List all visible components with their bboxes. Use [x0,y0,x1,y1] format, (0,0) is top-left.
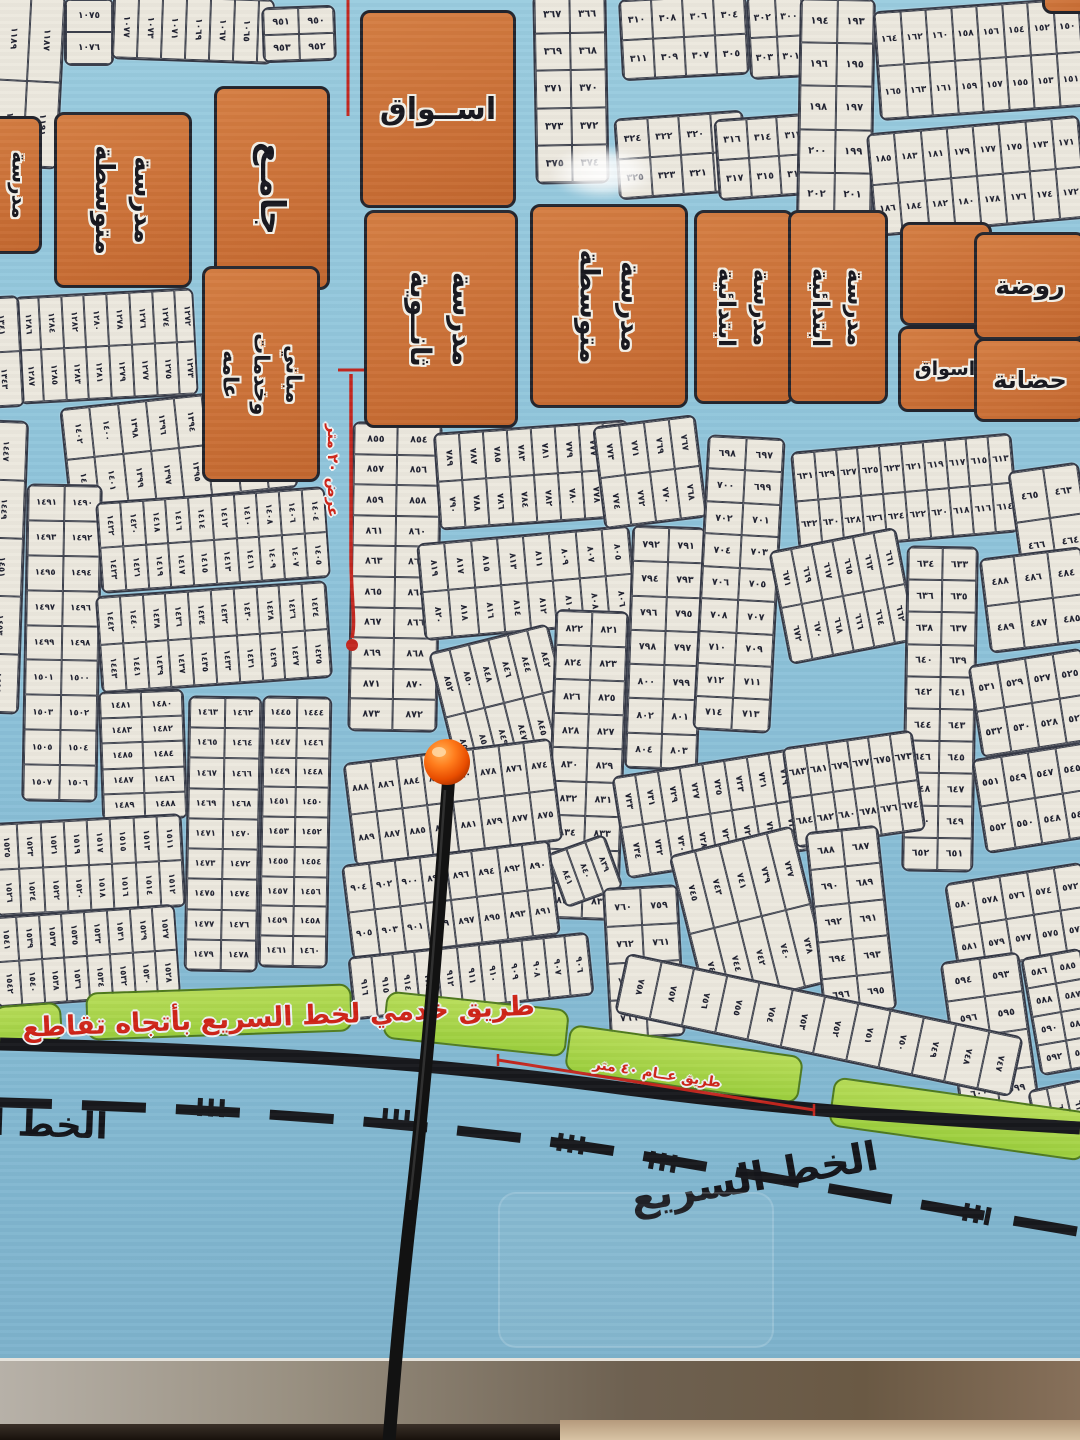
plot-number: ١٤٦٩ [188,788,224,819]
plot-number: ٧٨٥ [483,430,510,479]
plot-number: ١٤٥١ [262,787,296,817]
plot-number: ٥٩٥ [985,991,1028,1034]
plot-number: ١٥٣٣ [84,910,110,955]
plot-number: ٣٦٩ [535,33,571,71]
plot-number: ٣٧٠ [571,70,607,108]
plot-number: ١٤٨٦ [143,766,185,793]
plot-number: ١٥١٩ [63,820,89,866]
frame-shadow-left [0,1424,560,1440]
plot-number: ١٥١٤ [135,861,161,907]
plot-block-r-525: ٥٣١٥٢٩٥٢٧٥٢٥٥٣٢٥٣٠٥٢٨٥٢٦ [967,648,1080,759]
plot-number: ٣٠٩ [653,37,686,78]
plot-number: ١٤٥٥ [0,653,19,712]
plot-number: ٧٦٧ [669,416,700,469]
plot-number: ٦٥١ [937,838,972,871]
plot-number: ١٤٥٧ [261,876,295,906]
plot-number: ٣٢٢ [647,116,681,157]
plot-number: ١٤٥١ [0,537,23,596]
plot-number: ١٥٣٩ [16,915,42,960]
plot-block-ml-1490: ١٤٩١١٤٩٠١٤٩٣١٤٩٢١٤٩٥١٤٩٤١٤٩٧١٤٩٦١٤٩٩١٤٩٨… [21,483,103,802]
facility-label: حضانة [993,362,1067,398]
plot-number: ٨٩١ [528,887,559,936]
plot-number: ٧٧٩ [555,425,582,474]
plot-block-ml-1444: ١٤٤٥١٤٤٤١٤٤٧١٤٤٦١٤٤٩١٤٤٨١٤٥١١٤٥٠١٤٥٣١٤٥٢… [258,695,333,968]
plot-number: ٨١٧ [444,541,474,590]
plot-number: ١٩٤ [801,0,838,43]
plot-block-c-697: ٦٩٨٦٩٧٧٠٠٦٩٩٧٠٢٧٠١٧٠٤٧٠٣٧٠٦٧٠٥٧٠٨٧٠٧٧١٠٧… [692,434,785,734]
plot-number: ٨٢٤ [555,645,591,680]
facility-orange-sliver-top-right [1042,0,1080,14]
plot-number: ٦٩٤ [818,939,857,979]
plot-number: ١٥٤٠ [19,959,45,1004]
plot-number: ١٤٥٤ [294,847,328,877]
plot-number: ١٤٧٢ [222,849,258,880]
plot-block-tl-1075: ١٠٧٥١٠٧٦ [64,0,114,66]
plot-number: ٦٩٨ [708,436,747,470]
plot-number: ٧٩٥ [666,597,702,632]
plot-number: ١٤٢٩ [259,632,285,680]
plot-number: ١٥٣٨ [42,958,68,1003]
plot-block-c-767: ٧٧٣٧٧١٧٦٩٧٦٧٧٧٤٧٧٢٧٧٠٧٦٨ [592,414,708,530]
plot-number: ١٤٨٥ [102,742,144,769]
plot-number: ١٦١ [929,61,958,116]
plot-number: ١٥٣ [1031,54,1060,109]
plot-number: ٨٧٢ [392,699,436,730]
plot-number: ١٤٦٦ [224,758,260,789]
plot-number: ١٢٧٤ [152,290,177,343]
plot-number: ١٢٨٣ [64,347,89,400]
plot-number: ١٤٩٢ [64,521,101,557]
plot-number: ١٩٦ [800,43,837,87]
plot-number: ١٤٩٩ [26,625,63,661]
plot-number: ١٤٨١ [100,692,142,719]
plot-number: ١٤٣٨ [142,593,168,641]
plot-number: ١٢٨٢ [61,295,86,348]
plot-number: ١٢٧٥ [155,342,180,395]
plot-number: ٨١٦ [475,585,505,634]
plot-number: ١٥٠٢ [60,695,97,731]
plot-number: ١٤٧٩ [186,939,222,970]
plot-number: ٣٦٦ [569,0,605,33]
plot-number: ٦٤٩ [938,806,973,839]
plot-number: ١٦٣ [904,63,933,118]
plot-number: ٣٧٢ [571,107,607,145]
plot-number: ٩٥١ [263,8,299,35]
plot-number: ٧٠٦ [701,566,740,600]
frame-highlight [0,1358,1080,1361]
plot-number: ١٥٢١ [40,821,66,867]
plot-number: ١٤٣٩ [146,640,172,688]
plot-number: ١٤٩٤ [63,556,100,592]
plot-number: ٨٢٧ [588,714,624,749]
plot-number: ١٩٣ [837,0,874,44]
plot-number: ١٤٤٠ [120,595,146,643]
plot-number: ٧٩٣ [667,562,703,597]
plot-number: ١٥٠١ [25,660,62,696]
plot-number: ١٤٢٨ [256,585,282,633]
facility-label: مدرسةابتدائية [0,151,34,220]
plot-number: ١٧١ [1051,117,1080,169]
plot-number: ١٤٤٣ [100,643,126,691]
plot-number: ١٤٣٢ [211,589,237,637]
plot-number: ١٥٢٨ [155,950,181,995]
plot-number: ١٢٧٢ [175,289,199,342]
plot-block-ml-1480: ١٤٨١١٤٨٠١٤٨٣١٤٨٢١٤٨٥١٤٨٤١٤٨٧١٤٨٦١٤٨٩١٤٨٨ [98,689,188,822]
plot-number: ١٤١٢ [211,494,237,539]
plot-number: ١٤١٤ [188,496,214,541]
plot-number: ١٤٥٠ [295,787,329,817]
plot-number: ١٠٦٧ [209,0,235,61]
facility-middle-school-left: مدرسةمتوسطة [54,112,192,288]
plot-number: ٨٢٣ [590,646,626,681]
plot-number: ١٥٩ [955,59,984,114]
plot-number: ٢٠٠ [799,129,836,173]
plot-number: ١٤٦١ [260,936,294,966]
plot-number: ١٢٧٧ [132,343,157,396]
plot-number: ٧٩٦ [631,595,667,630]
camera-flash-glare [548,144,658,200]
plot-number: ٦٤٣ [939,709,974,742]
plot-number: ٦٩٩ [743,471,782,505]
plot-number: ١٤٦٠ [293,936,327,966]
plot-number: ١٤٥٦ [294,877,328,907]
plot-number: ٣٧٣ [536,108,572,146]
plot-number: ٧١٣ [731,697,770,731]
plot-number: ٧١٢ [696,663,735,697]
plot-number: ٦٩٧ [745,438,784,472]
plot-number: ١٤٥٨ [293,906,327,936]
plot-number: ٦٣٣ [942,548,977,581]
plot-number: ١٤٠٩ [259,535,285,580]
plot-number: ١٥٢٤ [19,867,45,913]
plot-number: ٦٩١ [849,899,888,939]
plot-number: ٦٨٧ [841,827,880,867]
plot-block-ml-1424: ١٤٤٢١٤٤٠١٤٣٨١٤٣٦١٤٣٤١٤٣٢١٤٣٠١٤٢٨١٤٢٦١٤٢٤… [95,580,333,694]
plot-number: ٨٢٠ [422,590,452,639]
plot-number: ٧١٠ [698,631,737,665]
plot-number: ١٢٧٦ [129,292,154,345]
plot-number: ١٤١٣ [214,538,240,583]
plot-number: ٨٦١ [353,515,397,546]
plot-number: ٨٥٧ [354,454,398,485]
facility-mosque: جامـع [214,86,330,290]
plot-number: ٦٩٠ [810,867,849,907]
plot-number: ٨٥٨ [396,485,440,516]
plot-number: ١٠٧٧ [113,0,139,58]
plot-number: ١٦٥ [878,64,907,119]
plot-number: ٣٠٤ [713,0,746,35]
plot-number: ٦٤٢ [906,676,941,709]
plot-number: ٦٤٧ [938,773,973,806]
plot-number: ١٤٣٤ [188,590,214,638]
plot-number: ٦٣٥ [942,580,977,613]
plot-number: ٨٧٥ [530,789,562,842]
plot-number: ٣٠٨ [651,0,684,39]
plot-number: ١٤٤٥ [264,697,298,727]
facility-label: روضة [995,267,1064,305]
plot-number: ١٥٢٩ [129,907,155,952]
plot-block-tr-150: ١٦٤١٦٢١٦٠١٥٨١٥٦١٥٤١٥٢١٥٠١٦٥١٦٣١٦١١٥٩١٥٧١… [872,0,1080,121]
plot-number: ٨١٨ [449,588,479,637]
plot-number: ٨٢٦ [554,679,590,714]
plot-number: ٣٠٧ [684,35,717,76]
plot-number: ٨٢١ [591,612,627,647]
plot-number: ١٤٤٧ [0,421,27,480]
plot-number: ١٤٠٨ [256,491,282,536]
plot-number: ١٤٦٣ [190,697,226,728]
facility-middle-school-center: مدرسةمتوسطة [530,204,688,408]
plot-number: ١٥٢٧ [152,906,178,951]
plot-number: ٨٦٥ [351,576,395,607]
plot-number: ١٧٢ [1055,167,1080,219]
plot-number: ٣٦٨ [570,33,606,71]
plot-block-ml-1404: ١٤٢٢١٤٢٠١٤١٨١٤١٦١٤١٤١٤١٢١٤١٠١٤٠٨١٤٠٦١٤٠٤… [95,486,331,594]
plot-number: ١٤١٨ [143,499,169,544]
plot-number: ٧٨٨ [462,478,489,527]
plot-number: ١٠٧١ [161,0,187,60]
plot-number: ١٤٨٤ [143,741,185,768]
plot-block-tl-950: ٩٥١٩٥٠٩٥٣٩٥٢ [261,5,337,64]
plot-number: ١٤١٥ [191,540,217,585]
facility-nursery: حضانة [974,338,1080,422]
plot-number: ١٥٠٦ [59,765,96,801]
facility-primary-school-left-edge: مدرسةابتدائية [0,116,42,254]
facility-label: اسواق [915,355,976,384]
plot-number: ١٥٤ [1002,3,1031,58]
plot-number: ١٥١٢ [159,860,185,906]
plot-number: ١٢٨١ [86,346,111,399]
facility-label: مبانيوخدمات عامه [214,318,309,430]
plot-number: ٨٦٣ [352,546,396,577]
street-20m-label: عرض ٢٠ متر [324,424,342,454]
plot-number: ٩٥٢ [299,33,335,60]
plot-block-tc-303: ٣١٠٣٠٨٣٠٦٣٠٤٣١١٣٠٩٣٠٧٣٠٥ [618,0,750,81]
plot-number: ٥٩٤ [942,959,985,1002]
plot-number: ١٥١٧ [87,819,113,865]
plot-number: ٣٠٦ [682,0,715,37]
plot-number: ١٤٨٠ [141,691,183,718]
facility-markets-large: اســواق [360,10,516,208]
plot-number: ١٤٣١ [237,634,263,682]
plot-number: ١٤٩٦ [62,591,99,627]
plot-number: ٦٣٦ [908,580,943,613]
plot-number: ١٥١١ [156,815,182,861]
plot-number: ١٤٤٨ [296,758,330,788]
plot-number: ٨٧١ [350,668,394,699]
plot-number: ٣٠٢ [748,0,777,38]
plot-number: ١٤٤٤ [297,698,331,728]
plot-number: ٣١١ [622,39,655,80]
plot-number: ١٤٢١ [123,545,149,590]
plot-number: ١٥٢٠ [66,865,92,911]
plot-number: ٣٠٥ [715,34,748,75]
plot-number: ١٤٤٢ [97,596,123,644]
plot-number: ١٤٥٢ [295,817,329,847]
plot-number: ٧٨٦ [486,477,513,526]
facility-kindergarten: روضة [974,232,1080,340]
plot-number: ٦٩٢ [814,903,853,943]
plot-number: ١٥٢٢ [43,866,69,912]
plot-number: ١٠٦٥ [233,0,259,62]
plot-number: ١٢٧٨ [106,293,131,346]
facility-primary-school-b: مدرسةابتدائية [788,210,888,404]
facility-secondary-school: مدرسةثانــوية [364,210,518,428]
plot-block-tr-171: ١٨٥١٨٣١٨١١٧٩١٧٧١٧٥١٧٣١٧١١٨٦١٨٤١٨٢١٨٠١٧٨١… [866,115,1080,237]
plot-number: ٨٠٢ [627,698,663,733]
plot-number: ٦٥٢ [903,837,938,870]
plot-number: ١٤١١ [237,537,263,582]
plot-number: ١٥٦ [976,4,1005,59]
plot-number: ٣٧١ [536,70,572,108]
plot-number: ١١٨٧ [27,0,64,83]
plot-block-r-685: ٦٨٨٦٨٧٦٩٠٦٨٩٦٩٢٦٩١٦٩٤٦٩٣٦٩٦٦٩٥ [804,825,897,1018]
plot-number: ٨٢٢ [556,611,592,646]
plot-number: ١٤٧٤ [222,879,258,910]
plot-number: ٣٠٣ [750,37,779,78]
plot-number: ١٤٨٧ [102,768,144,795]
plot-number: ١٥٠٤ [60,730,97,766]
plot-number: ١٤٥٩ [260,906,294,936]
plot-number: ١٠٧٦ [66,32,112,64]
plot-number: ٦٣٨ [907,612,942,645]
plot-number: ٧٦٠ [604,888,642,927]
plot-number: ١٤٩١ [28,485,65,520]
plot-number: ٣١٠ [620,0,653,40]
plot-number: ٦٣٧ [941,612,976,645]
plot-number: ١٥١٥ [110,818,136,864]
plot-number: ١٤٧٣ [187,848,223,879]
plot-number: ١٤٧٧ [186,909,222,940]
facility-label: اســواق [380,87,496,132]
plot-number: ١٤٤١ [123,642,149,690]
plot-number: ٧٠٤ [703,533,742,567]
plot-number: ١٥٧ [980,57,1009,112]
plot-number: ١٥١٦ [112,863,138,909]
plot-number: ١٥١ [1056,52,1080,107]
plot-number: ١٣٤١ [0,297,20,353]
plot-number: ٣٢١ [681,153,715,194]
plot-number: ٧٨٧ [459,431,486,480]
facility-label: مدرسةابتدائية [710,267,779,346]
plot-number: ١٢٨٥ [41,348,66,401]
plot-number: ٨٢٨ [553,713,589,748]
plot-number: ١٩٨ [800,86,837,130]
plot-number: ٨١٢ [527,581,557,630]
plot-number: ١٤٠٧ [282,534,308,579]
plot-number: ٨٠٧ [575,529,605,578]
plot-number: ١٢٧٩ [109,345,134,398]
plot-number: ١٥٣٦ [64,956,90,1001]
plot-number: ١٤٠٦ [279,490,305,535]
plot-block-ml-1511: ١٥٢٥١٥٢٣١٥٢١١٥١٩١٥١٧١٥١٥١٥١٣١٥١١١٥٢٦١٥٢٤… [0,813,186,917]
plot-number: ٧٠٢ [705,501,744,535]
plot-number: ٤٨٩ [986,602,1025,652]
plot-number: ٨٥٦ [397,455,441,486]
plot-number: ٨٦٩ [350,637,394,668]
plot-number: ٣٢٠ [678,114,712,155]
plot-number: ٧٩٤ [632,561,668,596]
plot-number: ٤٨٤ [1047,548,1080,598]
plot-number: ١٤٣٣ [214,635,240,683]
plot-number: ٨٣٠ [551,747,587,782]
plot-number: ٨١١ [523,534,553,583]
plot-number: ١٤٢٤ [302,582,328,630]
highway-label-left: الخط السريع [0,1099,183,1150]
plot-number: ٨٠٠ [628,664,664,699]
plot-block-ml-1462: ١٤٦٣١٤٦٢١٤٦٥١٤٦٤١٤٦٧١٤٦٦١٤٦٩١٤٦٨١٤٧١١٤٧٠… [184,695,263,972]
plot-number: ٧٦٨ [675,466,706,519]
plot-number: ١٤٠٥ [305,532,331,577]
plot-number: ١٥٠٥ [24,730,61,766]
plot-number: ١٦٢ [900,10,929,65]
plot-number: ٣٦٧ [534,0,570,34]
plot-number: ٧٠٨ [700,598,739,632]
plot-number: ١٤١٧ [168,542,194,587]
plot-number: ٧٠١ [742,503,781,537]
plot-number: ١٤٤٩ [263,757,297,787]
plot-number: ١٤٢٢ [97,502,123,547]
facility-label: جامـع [246,141,297,234]
plot-number: ٦٨٨ [807,830,846,870]
plot-number: ٤٦٣ [1043,464,1080,518]
plot-number: ٦٤٥ [939,741,974,774]
plot-number: ١٤٤٦ [296,728,330,758]
plot-number: ٧٠٧ [736,600,775,634]
plot-number: ١٢٨٠ [84,294,109,347]
plot-number: ٤٨٥ [1053,594,1080,644]
plot-number: ١٤٩٥ [27,555,64,591]
plot-number: ١٥٠٣ [24,695,61,731]
plot-number: ٧٠٩ [735,633,774,667]
plot-number: ١٩٥ [836,43,873,87]
plot-number: ١٥٣٥ [61,912,87,957]
plot-number: ٨١٤ [501,583,531,632]
plot-block-r-661: ٦٧١٦٦٩٦٦٧٦٦٥٦٦٣٦٦١٦٧٢٦٧٠٦٦٨٦٦٦٦٦٤٦٦٢ [768,527,918,666]
plot-number: ٦٨٩ [845,863,884,903]
plot-number: ٩٥٠ [298,7,334,34]
plot-number: ١٤٩٣ [28,520,65,556]
plot-number: ١٩٧ [836,86,873,130]
plot-number: ٧٥٩ [640,886,678,925]
plot-number: ٥٩٣ [979,953,1022,996]
plot-number: ٧٩٠ [438,480,465,529]
plot-number: ١٠٧٣ [137,0,163,59]
plot-number: ٣١٤ [746,117,779,158]
plot-number: ١٤٣٧ [169,639,195,687]
plot-number: ١٢٧٣ [177,341,198,394]
plot-number: ١٤٥٣ [262,817,296,847]
plot-number: ٧٨٤ [510,475,537,524]
plot-number: ١٥٥ [1005,55,1034,110]
plot-number: ١٤٣٠ [233,587,259,635]
plot-number: ٧٨٢ [534,473,561,522]
plot-number: ٣١٥ [749,156,782,197]
facility-primary-school-a: مدرسةابتدائية [694,210,794,404]
plot-number: ٤٨٨ [981,556,1020,606]
plot-number: ٨٠٤ [626,732,662,767]
plot-number: ٨٦٧ [351,607,395,638]
plot-number: ١٠٧٥ [66,0,112,32]
plot-number: ١٤١٠ [233,493,259,538]
plot-number: ١٥١٨ [89,864,115,910]
plot-number: ٣١٧ [718,158,751,199]
plot-number: ١٤٣٥ [191,637,217,685]
plot-block-r-483: ٤٨٨٤٨٦٤٨٤٤٨٩٤٨٧٤٨٥ [979,546,1080,654]
plot-number: ٦٩٣ [853,935,892,975]
plot-number: ١٤٥٥ [261,846,295,876]
plot-block-ml-1272: ١٢٨٦١٢٨٤١٢٨٢١٢٨٠١٢٧٨١٢٧٦١٢٧٤١٢٧٢١٢٨٧١٢٨٥… [13,287,198,404]
plot-number: ١٥٠٧ [23,764,60,800]
